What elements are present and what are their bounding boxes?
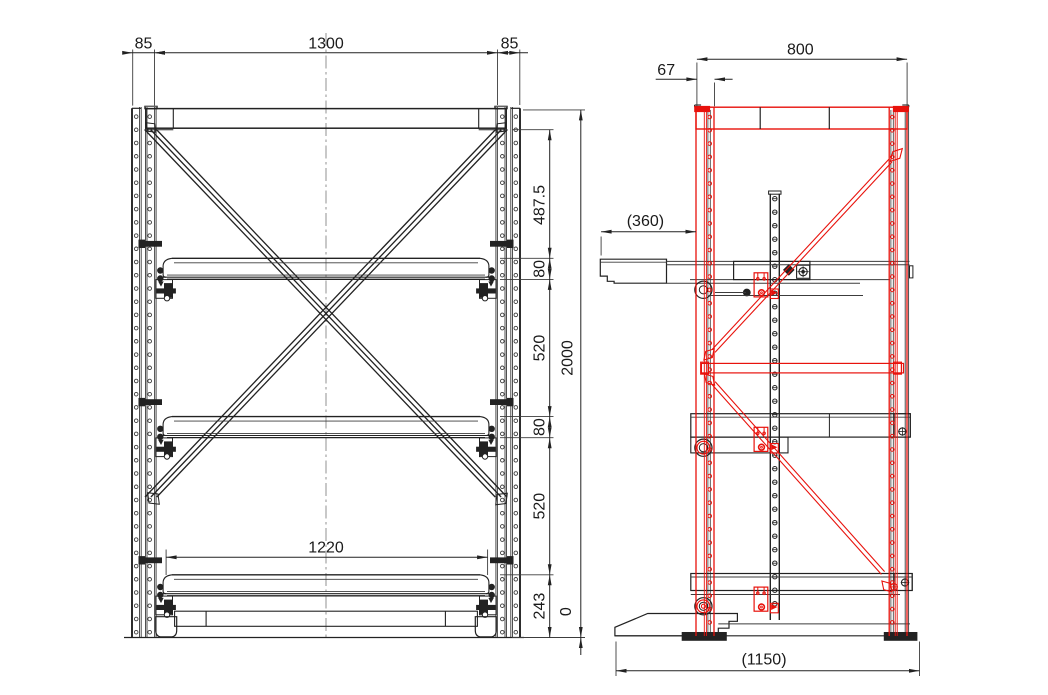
svg-text:800: 800 [787,42,814,59]
svg-text:85: 85 [135,36,153,53]
svg-text:243: 243 [532,593,549,620]
svg-text:85: 85 [501,36,519,53]
svg-text:80: 80 [532,260,549,278]
svg-text:487.5: 487.5 [532,185,549,225]
svg-text:520: 520 [532,493,549,520]
svg-text:(1150): (1150) [741,652,786,669]
svg-text:1300: 1300 [308,36,344,53]
svg-text:2000: 2000 [560,340,577,376]
svg-text:520: 520 [532,335,549,362]
svg-text:1220: 1220 [308,540,344,557]
svg-text:67: 67 [657,62,675,79]
svg-text:80: 80 [532,418,549,436]
svg-text:0: 0 [558,607,575,616]
svg-text:(360): (360) [627,213,664,230]
